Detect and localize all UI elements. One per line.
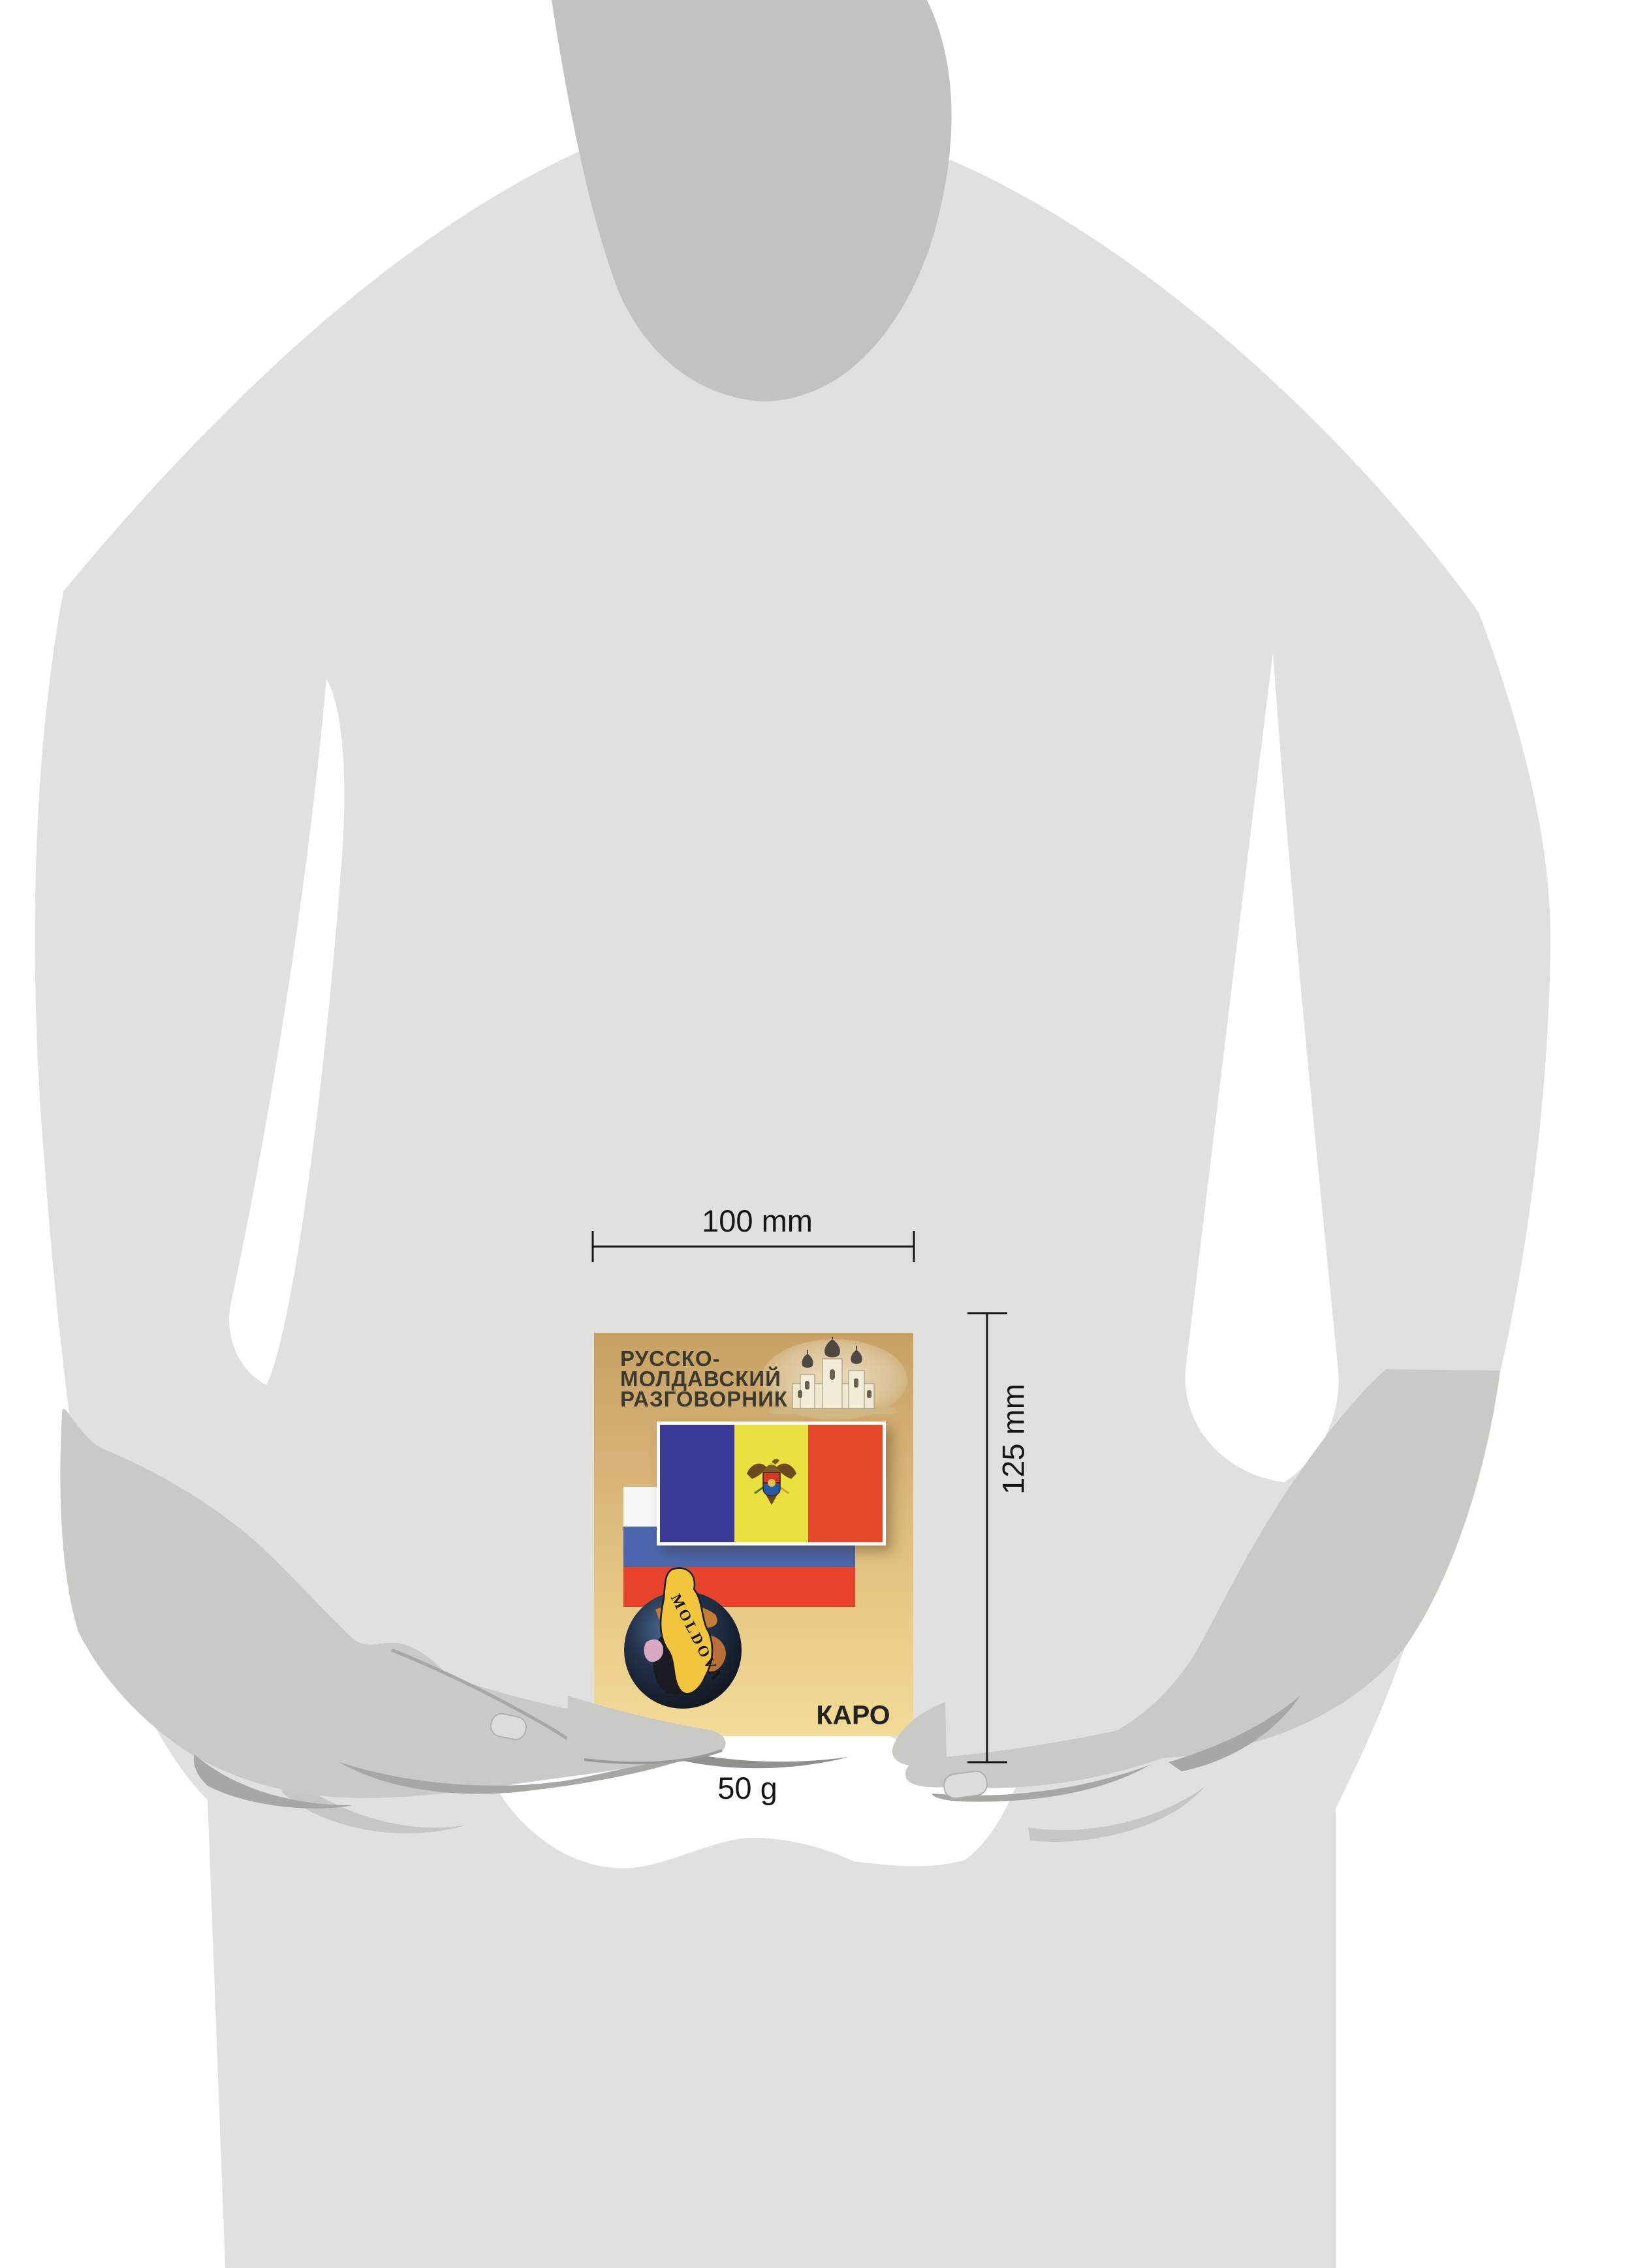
ox-head	[768, 1479, 776, 1487]
height-dimension-label: 125 mm	[996, 1384, 1031, 1495]
left-tower	[800, 1375, 815, 1408]
window	[854, 1378, 858, 1388]
book-cover: РУССКО- МОЛДАВСКИЙ РАЗГОВОРНИК	[594, 1333, 913, 1736]
moldova-coat-of-arms	[742, 1455, 802, 1512]
window	[805, 1381, 809, 1390]
window	[830, 1369, 835, 1380]
book-title: РУССКО- МОЛДАВСКИЙ РАЗГОВОРНИК	[620, 1348, 788, 1409]
width-dimension-label: 100 mm	[702, 1203, 813, 1239]
book-title-line3: РАЗГОВОРНИК	[620, 1389, 788, 1409]
weight-label: 50 g	[717, 1770, 777, 1806]
moldova-flag	[657, 1421, 886, 1546]
scene-canvas: РУССКО- МОЛДАВСКИЙ РАЗГОВОРНИК	[0, 0, 1632, 2268]
window	[867, 1390, 871, 1398]
book-title-line1: РУССКО-	[620, 1348, 788, 1369]
person-silhouette	[0, 0, 1632, 2268]
eagle-head	[772, 1459, 779, 1465]
right-tower	[849, 1371, 864, 1408]
central-tower	[823, 1359, 842, 1408]
moldova-flag-blue-stripe	[660, 1425, 734, 1542]
book-title-line2: МОЛДАВСКИЙ	[620, 1369, 788, 1389]
window	[798, 1390, 802, 1398]
publisher-logo: КАРО	[816, 1700, 890, 1731]
moldova-flag-red-stripe	[808, 1425, 883, 1542]
